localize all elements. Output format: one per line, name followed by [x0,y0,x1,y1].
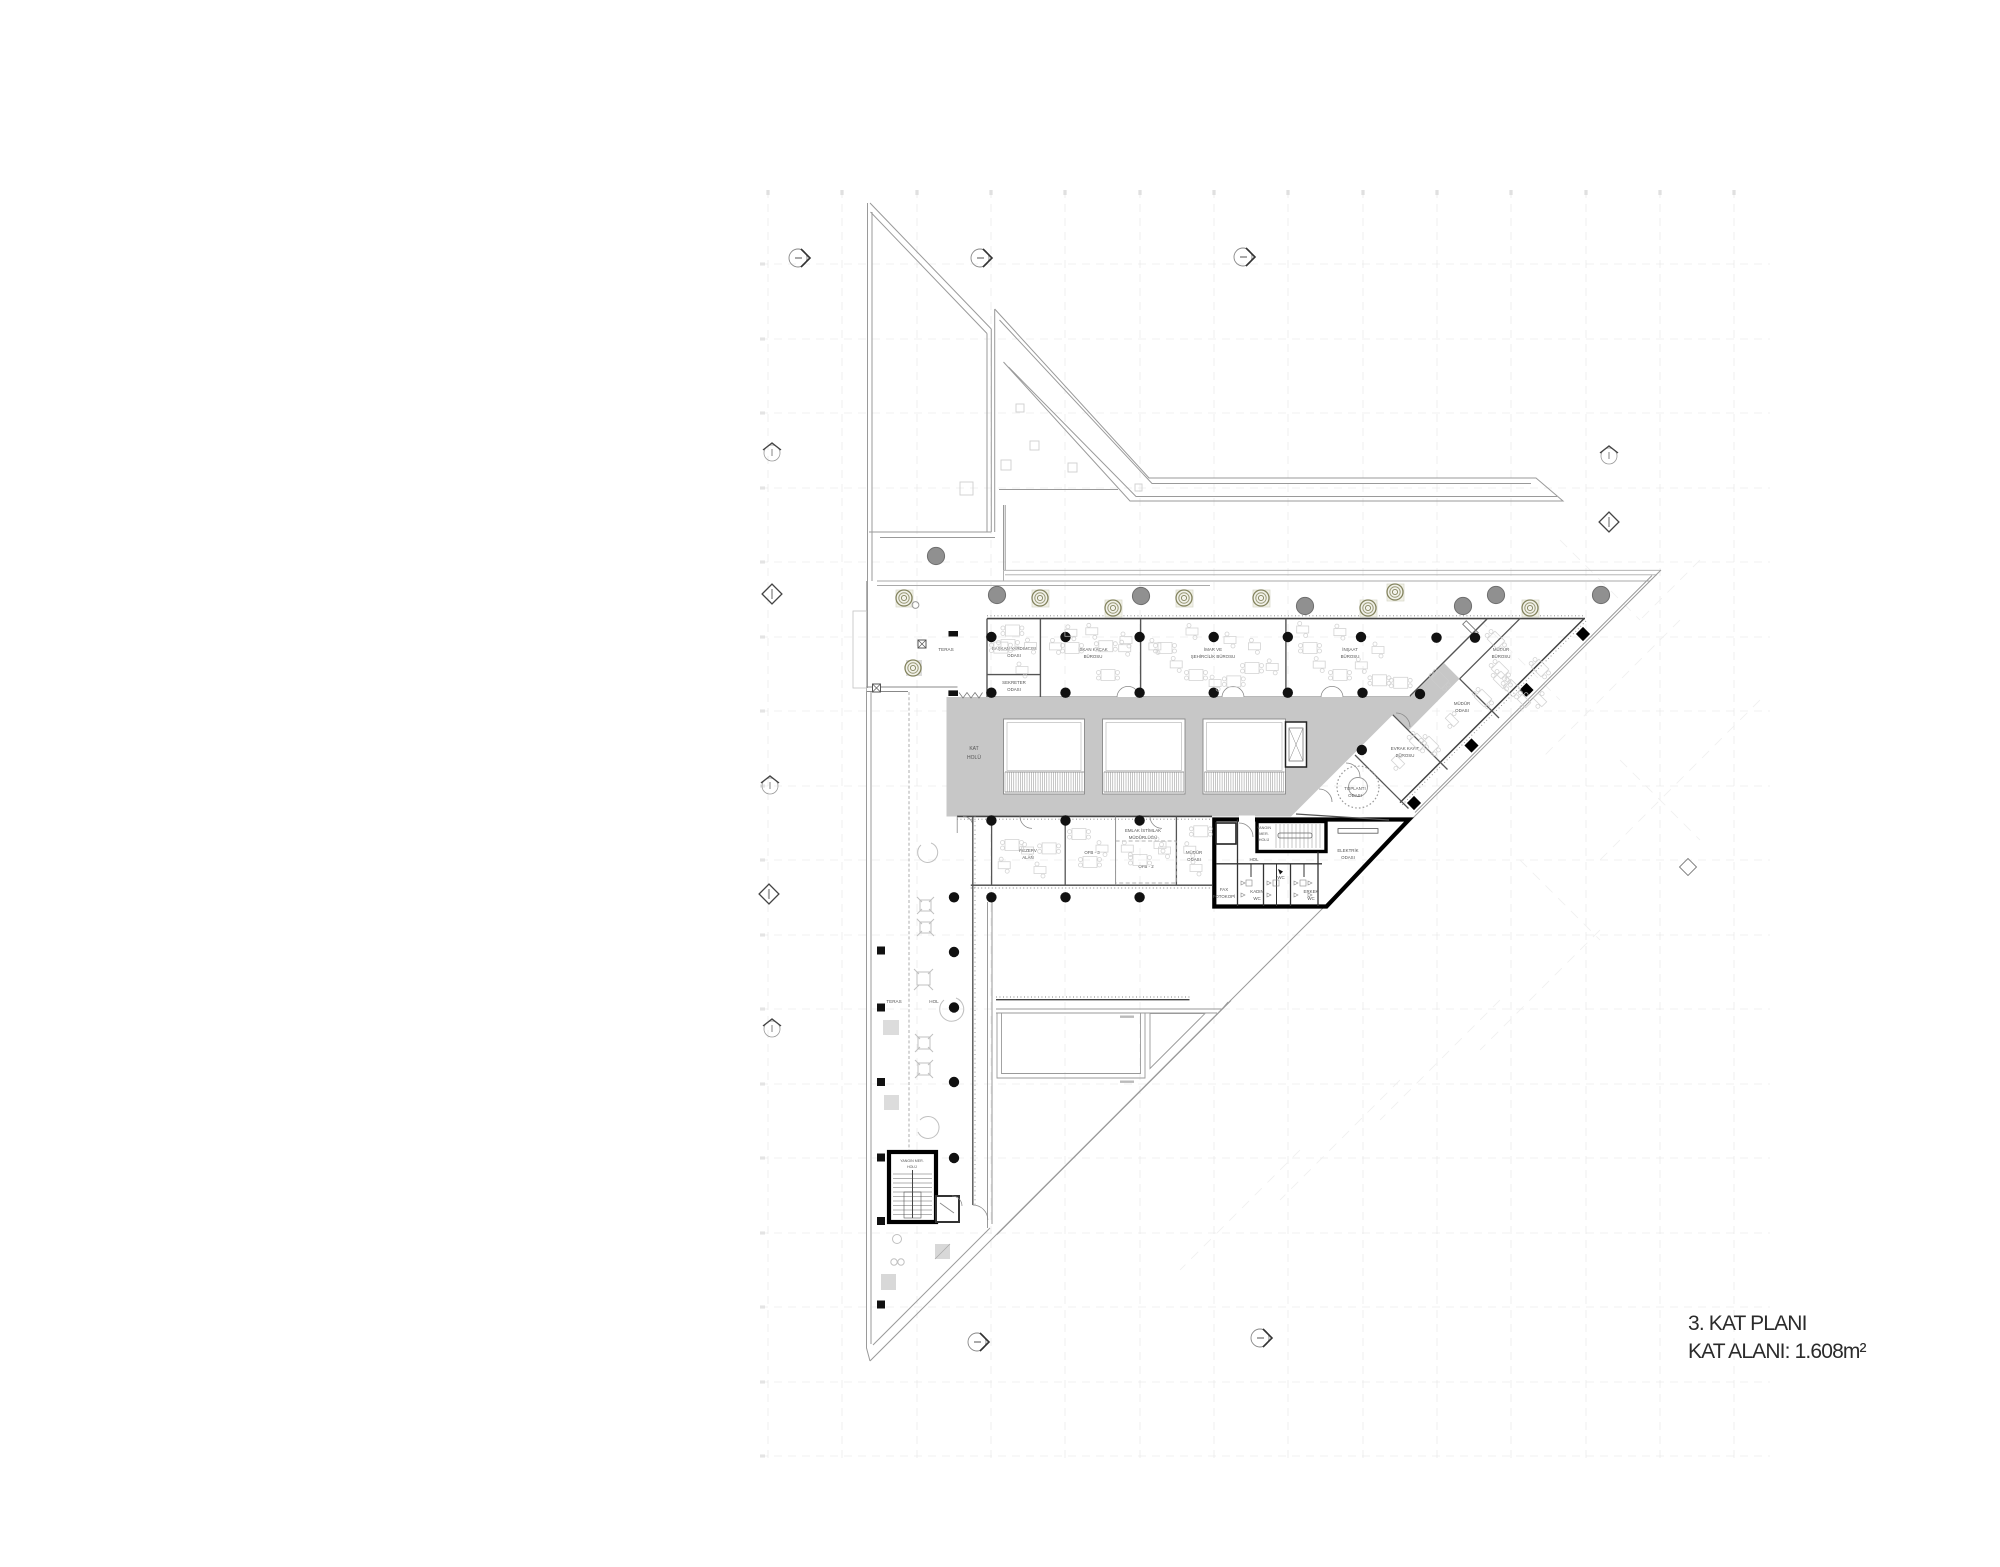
svg-text:TERAS: TERAS [938,647,953,652]
svg-text:HOLÜ: HOLÜ [907,1165,917,1169]
svg-text:İMAR VE: İMAR VE [1204,647,1222,652]
svg-text:ODASI: ODASI [1348,793,1362,798]
svg-text:WC: WC [1307,896,1314,901]
svg-text:OFB - 3: OFB - 3 [1084,850,1100,855]
svg-text:MÜDÜRLÜĞÜ: MÜDÜRLÜĞÜ [1129,835,1158,840]
svg-text:HOL: HOL [1249,857,1259,862]
svg-text:HOLÜ: HOLÜ [1259,838,1270,842]
svg-text:FOTOKOPİ: FOTOKOPİ [1213,894,1236,899]
svg-text:OFB - 2: OFB - 2 [1138,864,1154,869]
svg-text:ODASI: ODASI [1455,708,1469,713]
svg-text:BÜROSU: BÜROSU [1492,654,1511,659]
svg-text:ODASI: ODASI [1007,687,1021,692]
svg-text:ELEKTRİK: ELEKTRİK [1337,848,1358,853]
svg-text:ODASI: ODASI [1007,653,1021,658]
svg-text:İNŞAAT: İNŞAAT [1342,647,1358,652]
svg-text:MÜDÜR: MÜDÜR [1454,701,1470,706]
svg-text:KAT ALANI: 1.608m²: KAT ALANI: 1.608m² [1688,1340,1867,1363]
svg-text:ODASI: ODASI [1341,855,1355,860]
svg-text:HOLÜ: HOLÜ [967,754,981,761]
svg-text:KADIN: KADIN [1250,889,1263,894]
svg-text:YANGIN MER.: YANGIN MER. [900,1159,924,1163]
svg-text:FAX: FAX [1220,887,1228,892]
svg-text:BÜROSU: BÜROSU [1084,654,1103,659]
svg-text:ŞEHİRCİLİK BÜROSU: ŞEHİRCİLİK BÜROSU [1191,654,1235,659]
svg-text:EMLAK İSTİMLAK: EMLAK İSTİMLAK [1125,828,1161,833]
svg-text:TOPLANTI: TOPLANTI [1344,786,1365,791]
svg-text:KAT: KAT [969,746,978,752]
svg-text:TERAS: TERAS [886,999,901,1004]
svg-text:YANGIN: YANGIN [1257,826,1272,830]
svg-text:3. KAT PLANI: 3. KAT PLANI [1688,1312,1807,1335]
svg-text:SEKRETER: SEKRETER [1002,680,1026,685]
svg-text:MER.: MER. [1259,832,1269,836]
svg-text:WC: WC [1253,896,1260,901]
svg-text:WC: WC [1277,875,1284,880]
svg-text:HOL: HOL [929,999,939,1004]
svg-text:MÜDÜR: MÜDÜR [1493,647,1509,652]
svg-text:ERKEK: ERKEK [1304,889,1319,894]
